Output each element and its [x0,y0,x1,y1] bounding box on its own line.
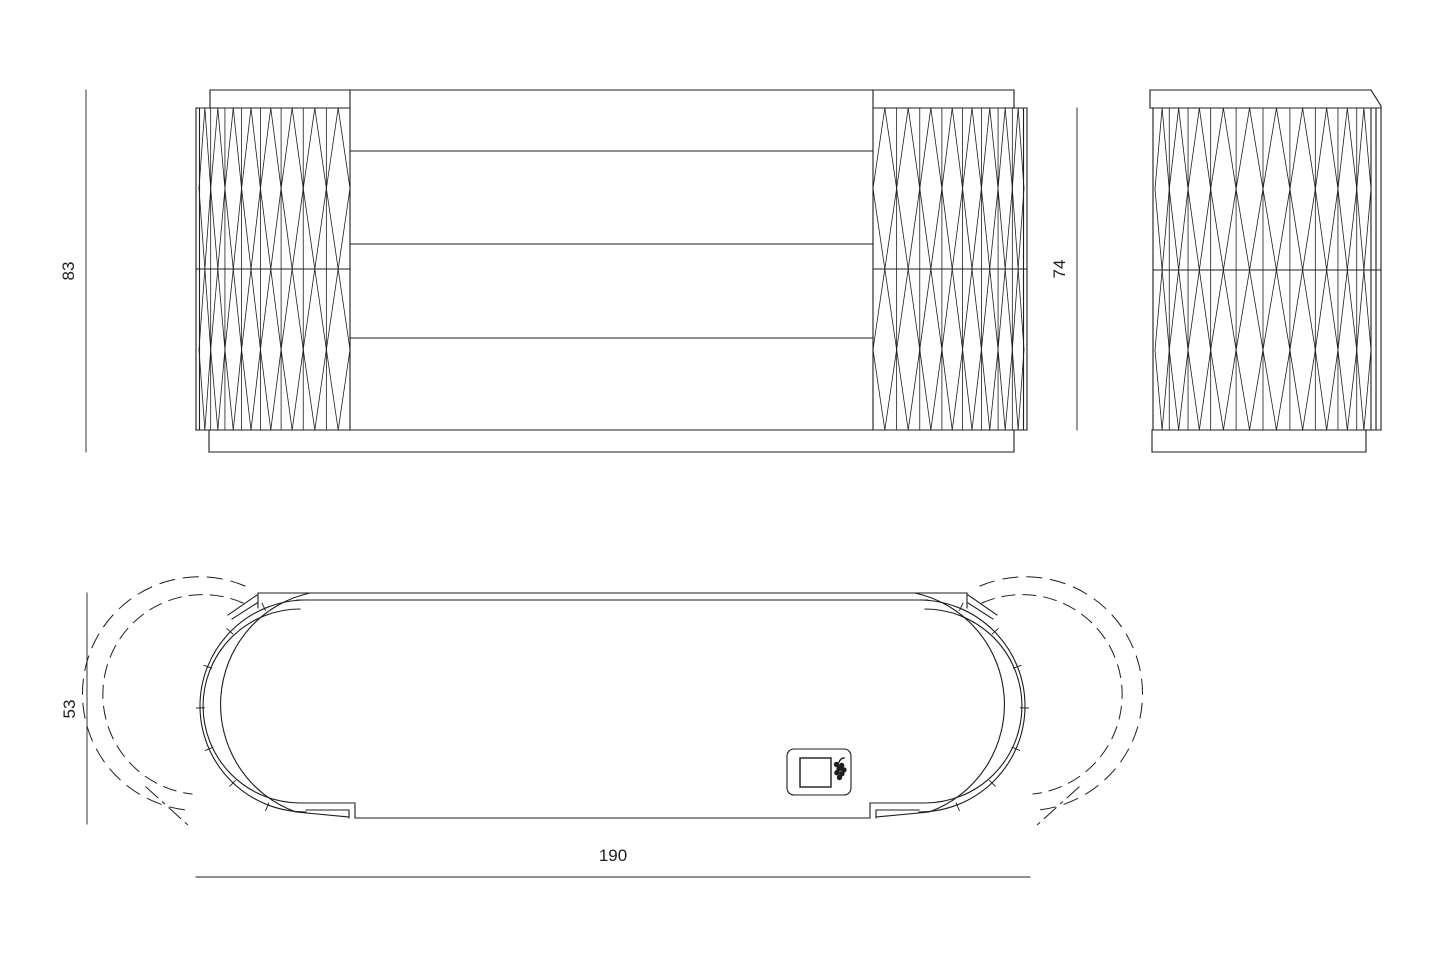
front-elevation [196,90,1027,452]
dim-label-depth: 53 [60,700,79,719]
logo-plate [787,749,851,795]
door-swing-arcs [82,577,1142,826]
plan-right-carcass-arc [925,609,1022,803]
plan-bottom-step [300,803,925,818]
plan-right-door-outer-arc [876,593,1004,817]
plan-left-hinge [228,593,258,619]
dim-label-width: 190 [599,846,627,865]
side-pleated-panel [1155,108,1371,430]
left-door-open-edge [146,787,189,826]
plan-right-door-inner-arc [919,600,1025,812]
plan-left-door-outer-arc [221,593,349,817]
technical-drawing-sheet: 83 74 53 190 [0,0,1445,968]
logo-plate-window [800,758,831,787]
plan-view [82,577,1142,826]
plan-right-hinge [967,593,997,619]
dimension-lines: 83 74 53 190 [59,90,1077,877]
side-elevation [1150,90,1381,452]
grapes-logo-icon [834,758,847,780]
door-facet-ticks [197,603,1029,810]
dim-label-overall-height: 83 [59,262,78,281]
right-door-open-edge [1036,787,1079,826]
plan-left-door-inner-arc [200,600,306,812]
side-cap-bevel [1371,90,1381,106]
plan-left-carcass-arc [203,609,300,803]
dim-label-body-height: 74 [1050,260,1069,279]
